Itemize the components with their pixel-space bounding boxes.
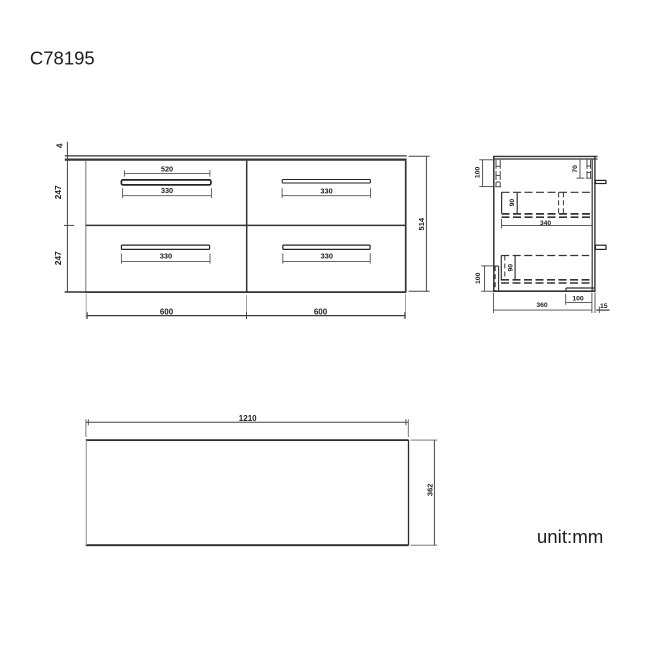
svg-text:330: 330 <box>321 251 333 260</box>
svg-text:1210: 1210 <box>239 414 257 423</box>
svg-text:360: 360 <box>536 302 548 309</box>
svg-text:247: 247 <box>53 185 63 199</box>
svg-text:247: 247 <box>53 251 63 265</box>
svg-text:514: 514 <box>417 217 426 230</box>
svg-text:340: 340 <box>540 220 552 227</box>
svg-text:15: 15 <box>600 303 608 310</box>
svg-text:C78195: C78195 <box>30 47 95 68</box>
svg-text:unit:mm: unit:mm <box>537 526 603 547</box>
svg-text:100: 100 <box>474 167 481 179</box>
svg-text:90: 90 <box>509 199 516 207</box>
svg-text:600: 600 <box>160 307 174 316</box>
svg-text:330: 330 <box>161 186 173 195</box>
svg-text:600: 600 <box>314 307 328 316</box>
svg-text:330: 330 <box>160 251 172 260</box>
svg-text:100: 100 <box>475 272 482 284</box>
svg-text:362: 362 <box>426 484 435 497</box>
svg-text:520: 520 <box>161 165 173 174</box>
svg-text:100: 100 <box>572 295 584 302</box>
svg-text:90: 90 <box>507 264 514 272</box>
svg-text:70: 70 <box>572 165 579 173</box>
svg-text:4: 4 <box>55 143 65 148</box>
svg-text:330: 330 <box>320 186 332 195</box>
